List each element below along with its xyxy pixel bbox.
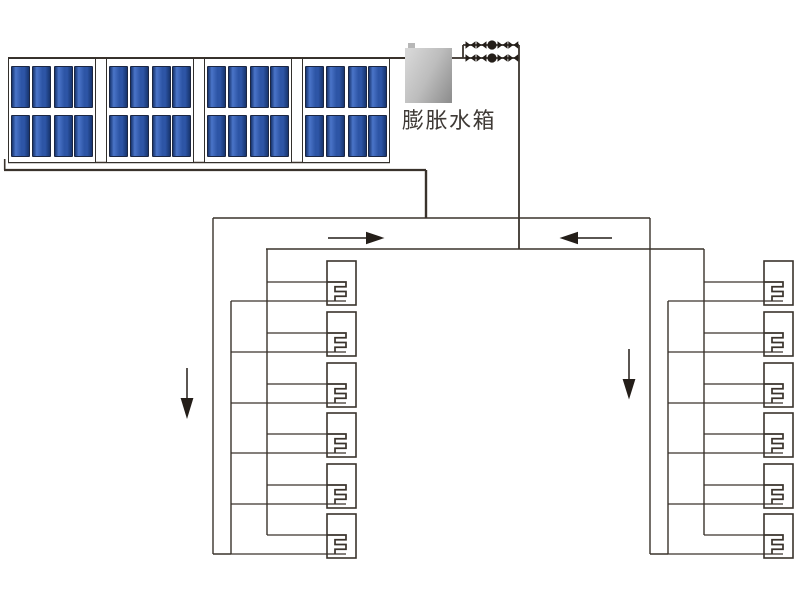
collector-panel (74, 115, 93, 157)
collector-panel (130, 115, 149, 157)
collector-panel-pair (250, 115, 290, 157)
collector-panel-pair (109, 115, 149, 157)
collector-panel (270, 115, 289, 157)
flow-arrow-left-icon (560, 232, 579, 244)
radiator (764, 464, 793, 508)
collector-row (11, 115, 93, 157)
valve-icon (498, 54, 508, 62)
collector-panel (32, 115, 51, 157)
collector-panel (32, 66, 51, 108)
collector-panel (270, 66, 289, 108)
collector-panel (109, 115, 128, 157)
radiator (327, 312, 356, 356)
collector-row (207, 66, 289, 108)
collector-group (302, 58, 390, 163)
collector-panel (152, 115, 171, 157)
valve-icon (508, 41, 518, 49)
collector-panel (172, 66, 191, 108)
collector-panel-pair (348, 115, 388, 157)
collector-panel (368, 66, 387, 108)
collector-group (106, 58, 194, 163)
collector-panel (207, 66, 226, 108)
radiator (764, 413, 793, 457)
radiator (327, 514, 356, 558)
radiator (764, 261, 793, 305)
collector-panel (172, 115, 191, 157)
collector-panel (152, 66, 171, 108)
radiator (327, 464, 356, 508)
collector-panel (109, 66, 128, 108)
collector-panel-pair (305, 66, 345, 108)
collector-row (207, 115, 289, 157)
collector-panel (326, 66, 345, 108)
collector-panel-pair (109, 66, 149, 108)
collector-panel (11, 115, 30, 157)
collector-panel (348, 66, 367, 108)
collector-group (8, 58, 96, 163)
flow-arrow-right-icon (366, 232, 385, 244)
flow-arrow-down-right-icon (623, 379, 636, 400)
valve-icon (498, 41, 508, 49)
flow-arrow-down-left-icon (181, 398, 194, 419)
collector-panel (54, 66, 73, 108)
collector-panel (250, 115, 269, 157)
collector-row (109, 115, 191, 157)
collector-panel (228, 66, 247, 108)
valve-icon (477, 41, 487, 49)
solar-heating-system-diagram: 膨胀水箱 (0, 0, 800, 600)
collector-panel (54, 115, 73, 157)
collector-panel-pair (152, 66, 192, 108)
pump-icon (487, 40, 496, 49)
collector-panel (130, 66, 149, 108)
collector-panel (326, 115, 345, 157)
collector-panel (74, 66, 93, 108)
collector-panel (305, 66, 324, 108)
collector-panel-pair (11, 66, 51, 108)
radiator (764, 363, 793, 407)
pump-icon (487, 53, 496, 62)
collector-panel (11, 66, 30, 108)
collector-panel (305, 115, 324, 157)
collector-array (8, 58, 390, 163)
valve-icon (508, 54, 518, 62)
valve-icon (466, 54, 476, 62)
collector-panel (250, 66, 269, 108)
collector-panel-pair (305, 115, 345, 157)
collector-panel-pair (152, 115, 192, 157)
collector-group (204, 58, 292, 163)
radiator (327, 413, 356, 457)
collector-panel (348, 115, 367, 157)
expansion-tank (405, 48, 452, 103)
collector-row (109, 66, 191, 108)
collector-panel-pair (348, 66, 388, 108)
radiator (764, 312, 793, 356)
collector-row (305, 115, 387, 157)
collector-panel-pair (54, 66, 94, 108)
collector-panel (207, 115, 226, 157)
valve-icon (477, 54, 487, 62)
collector-panel (228, 115, 247, 157)
collector-row (11, 66, 93, 108)
collector-panel-pair (11, 115, 51, 157)
expansion-tank-label: 膨胀水箱 (402, 110, 496, 134)
collector-row (305, 66, 387, 108)
radiator (327, 363, 356, 407)
collector-panel-pair (54, 115, 94, 157)
radiator (327, 261, 356, 305)
collector-panel-pair (250, 66, 290, 108)
collector-panel-pair (207, 66, 247, 108)
collector-panel-pair (207, 115, 247, 157)
valve-icon (466, 41, 476, 49)
radiator (764, 514, 793, 558)
collector-panel (368, 115, 387, 157)
